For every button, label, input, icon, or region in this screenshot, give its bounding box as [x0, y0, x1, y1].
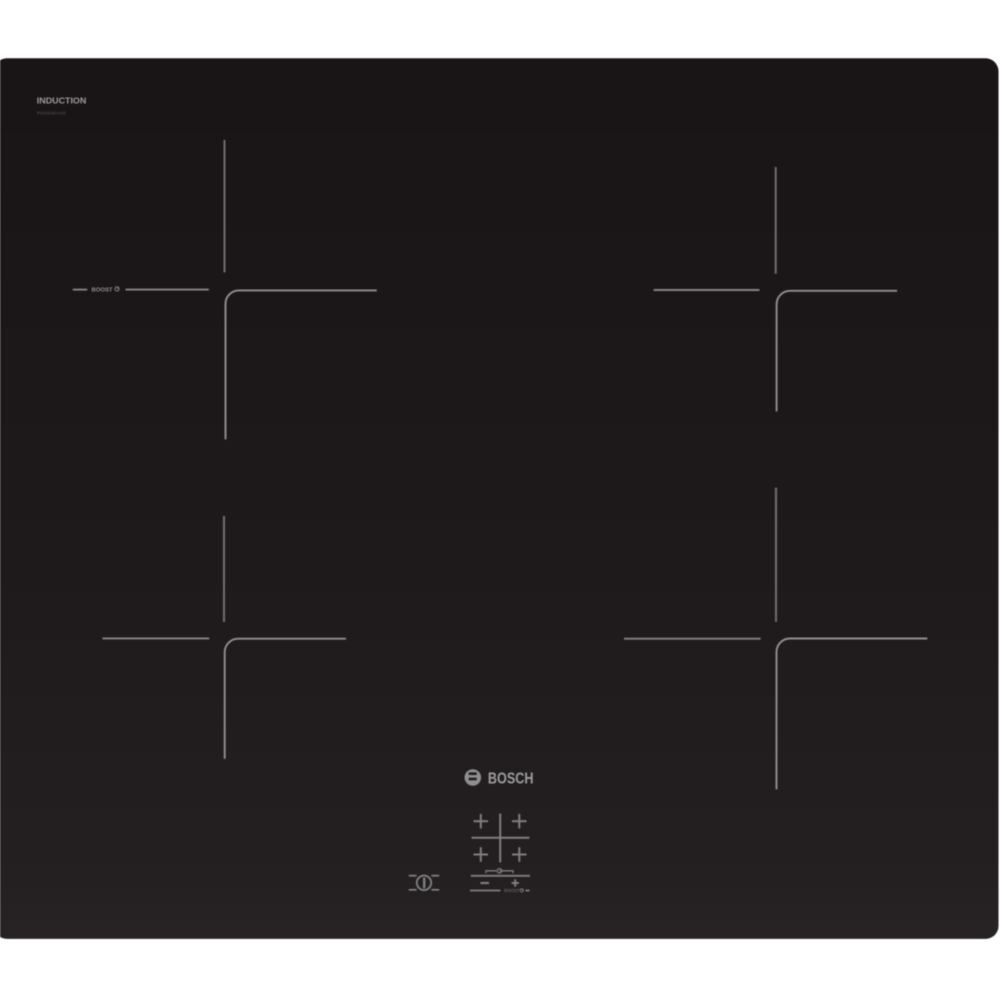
svg-text:INDUCTION: INDUCTION [37, 95, 87, 105]
svg-text:BOOST: BOOST [504, 888, 520, 893]
svg-text:PUG61KAA5: PUG61KAA5 [37, 110, 66, 115]
svg-text:BOOST: BOOST [92, 288, 114, 294]
svg-text:BOSCH: BOSCH [488, 771, 534, 788]
